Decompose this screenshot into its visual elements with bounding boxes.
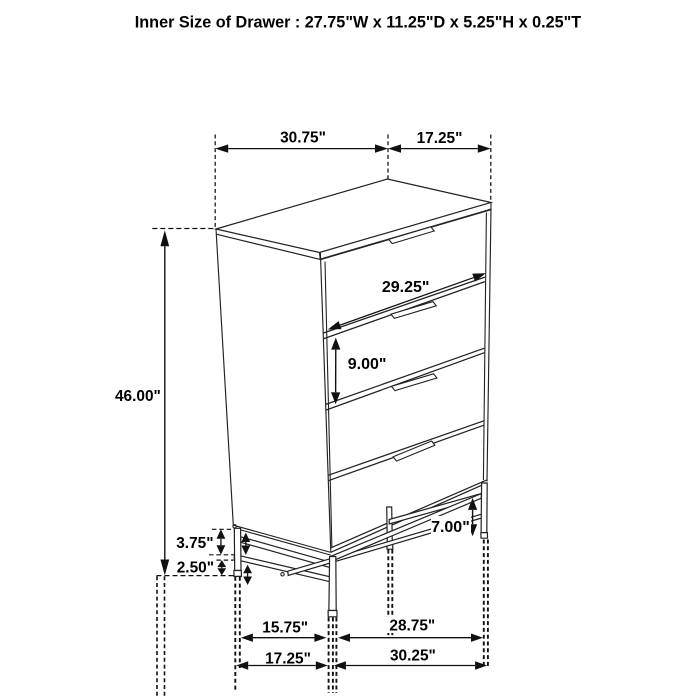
svg-text:17.25": 17.25" [417, 130, 463, 147]
svg-text:15.75": 15.75" [262, 620, 308, 637]
svg-text:2.50": 2.50" [177, 560, 214, 577]
svg-text:30.75": 30.75" [280, 130, 326, 147]
svg-text:7.00": 7.00" [431, 519, 470, 536]
svg-text:9.00": 9.00" [348, 356, 387, 373]
svg-text:30.25": 30.25" [390, 648, 436, 665]
svg-text:17.25": 17.25" [265, 650, 311, 667]
svg-text:Inner Size of Drawer : 27.75"W: Inner Size of Drawer : 27.75"W x 11.25"D… [135, 14, 581, 32]
svg-text:29.25": 29.25" [382, 279, 430, 296]
svg-text:3.75": 3.75" [176, 535, 213, 552]
svg-text:46.00": 46.00" [115, 388, 161, 405]
svg-text:28.75": 28.75" [389, 618, 435, 635]
